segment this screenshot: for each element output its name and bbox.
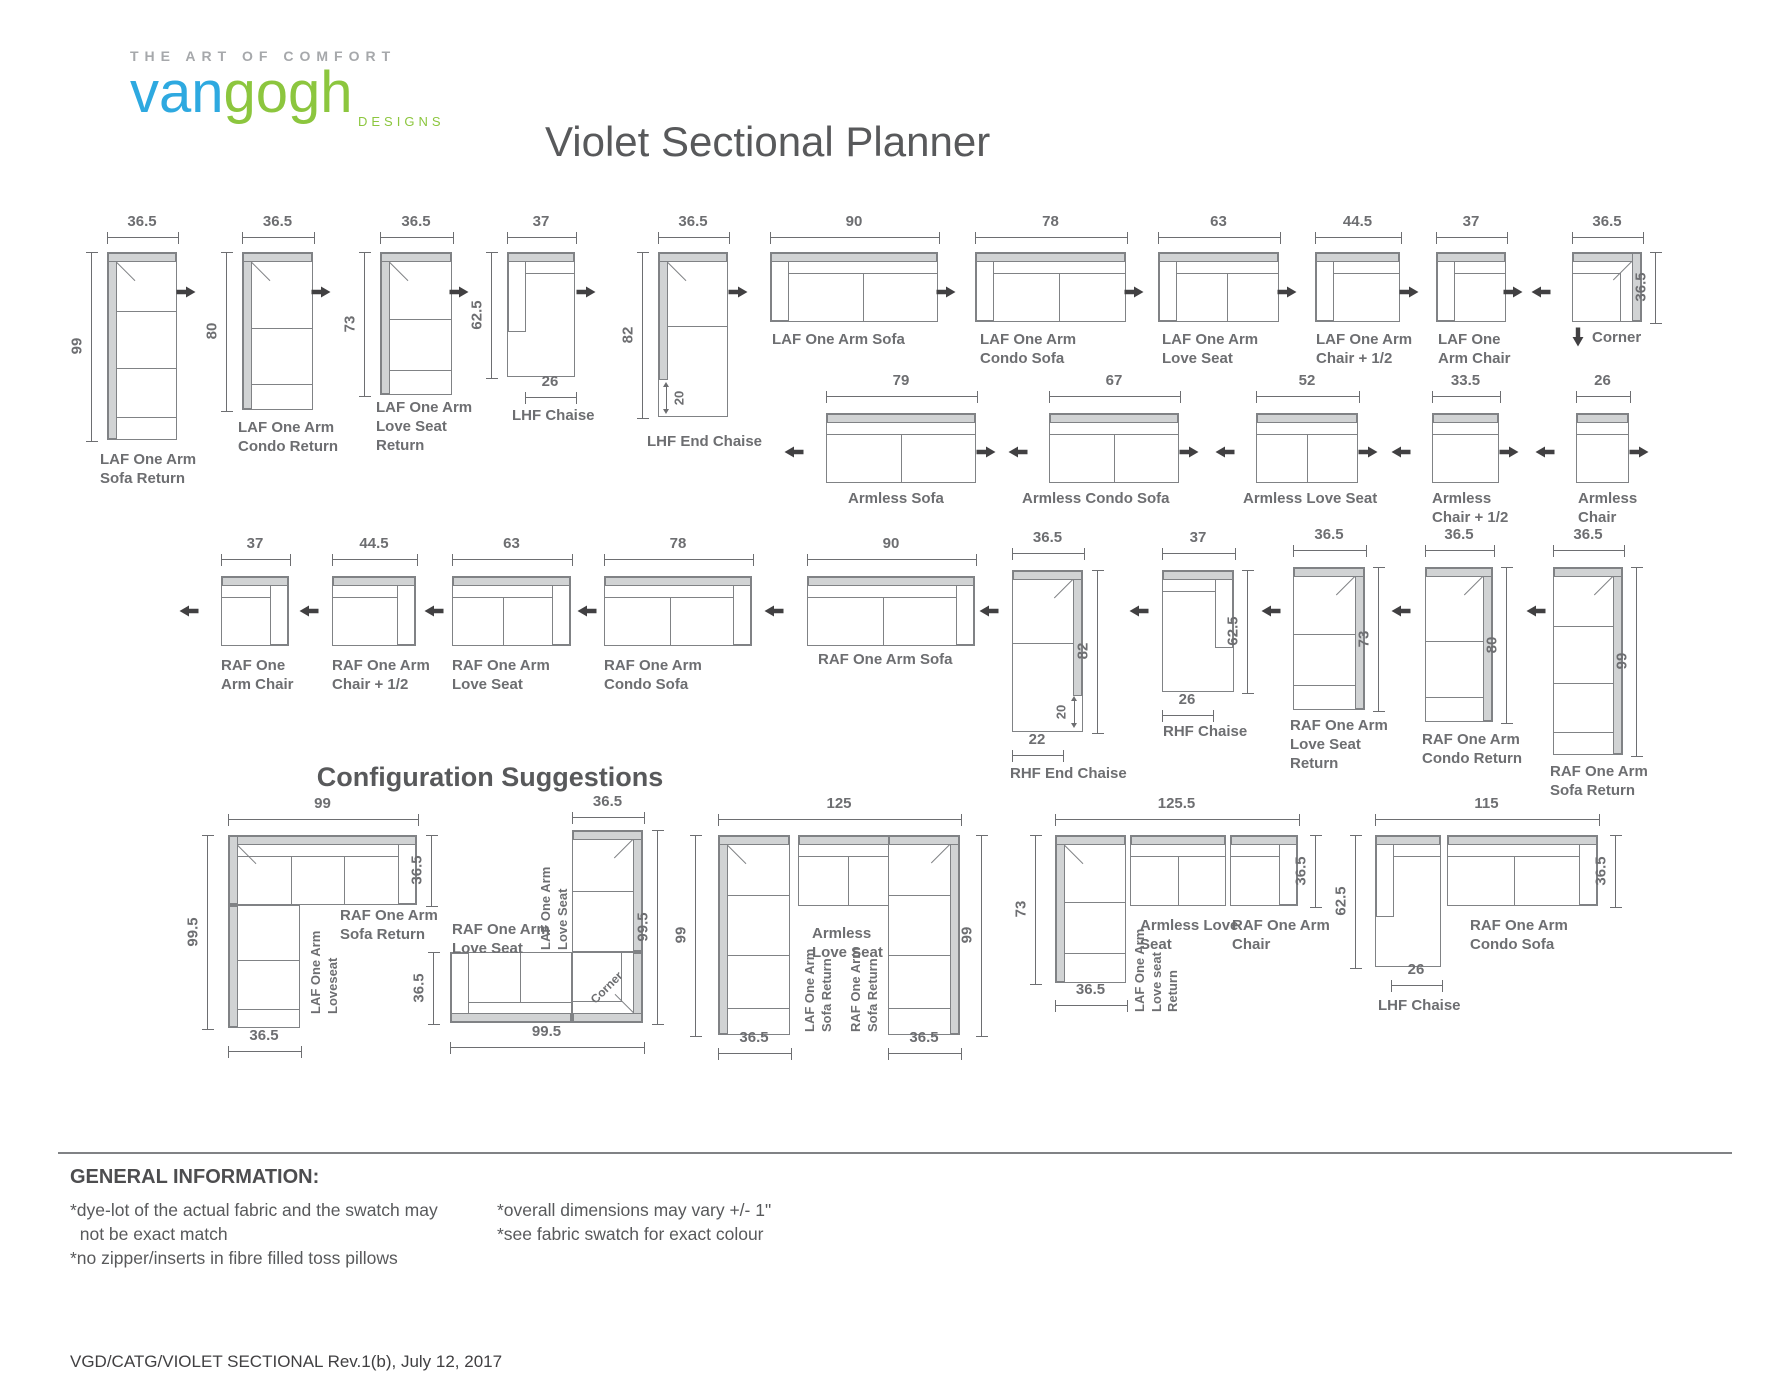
- dimension-label: 73: [1356, 630, 1373, 647]
- cushion-divider: [520, 953, 521, 1002]
- backrest: [659, 253, 668, 380]
- backrest: [1577, 414, 1628, 423]
- piece-cfg3-raf-one-arm-sofa-return: [888, 835, 960, 1035]
- dimension-label: 36.5: [1633, 272, 1650, 301]
- piece-cfg5-lhf-chaise: [1375, 835, 1441, 967]
- dimension-line: [718, 814, 962, 826]
- dimension-line: [1436, 232, 1508, 244]
- direction-arrow-icon: [1130, 605, 1149, 618]
- direction-arrow-icon: [765, 605, 784, 618]
- dimension-line: [1092, 570, 1104, 734]
- piece-raf-one-arm-sofa: [807, 576, 975, 646]
- dimension-label: 90: [846, 213, 863, 230]
- piece-label: RHF End Chaise: [1010, 764, 1127, 783]
- cushion-divider: [1294, 685, 1355, 686]
- general-info-column-2: *overall dimensions may vary +/- 1"*see …: [497, 1198, 771, 1246]
- miter-line: [1336, 576, 1355, 595]
- dimension-label: 80: [1484, 636, 1501, 653]
- dimension-line: [1375, 814, 1600, 826]
- dimension-line: [1055, 814, 1300, 826]
- miter-line: [931, 844, 950, 863]
- piece-lhf-chaise: [507, 252, 575, 377]
- miter-line: [251, 262, 270, 281]
- cushion-divider: [1554, 626, 1613, 627]
- backrest: [719, 836, 789, 845]
- configuration-suggestions-heading: Configuration Suggestions: [298, 762, 682, 793]
- piece-cfg2-raf-one-arm-love-seat: [450, 952, 572, 1023]
- cushion-divider: [728, 1008, 789, 1009]
- piece-cfg5-raf-one-arm-condo-sofa: [1447, 835, 1598, 906]
- dimension-label: 36.5: [411, 973, 428, 1002]
- piece-cfg2-laf-one-arm-love-seat: [572, 830, 643, 952]
- dimension-label: 78: [670, 535, 687, 552]
- piece-armless-condo-sofa: [1049, 413, 1179, 483]
- seat-line: [1393, 856, 1440, 857]
- direction-arrow-icon: [1630, 446, 1649, 459]
- piece-label: LAF One ArmSofa Return: [100, 450, 196, 488]
- dimension-arrow-line: [662, 382, 671, 414]
- armrest: [733, 585, 751, 645]
- backrest: [573, 1013, 642, 1022]
- piece-cfg4-raf-one-arm-chair: [1230, 835, 1298, 906]
- dimension-label: 36.5: [1573, 526, 1602, 543]
- dimension-line: [1158, 232, 1281, 244]
- piece-label: ArmlessChair + 1/2: [1432, 489, 1508, 527]
- dimension-line: [525, 392, 577, 404]
- piece-cfg4-armless-love-seat: [1130, 835, 1226, 906]
- dimension-label: 36.5: [1593, 856, 1610, 885]
- direction-arrow-icon: [1527, 605, 1546, 618]
- backrest: [1056, 836, 1125, 845]
- cushion-divider: [889, 955, 950, 956]
- backrest: [229, 836, 238, 904]
- piece-laf-one-arm-sofa: [770, 252, 938, 322]
- dimension-line: [1256, 391, 1360, 403]
- dimension-line: [1373, 567, 1385, 712]
- dimension-line: [690, 835, 702, 1037]
- cushion-divider: [1227, 273, 1228, 321]
- miter-line: [1594, 576, 1613, 595]
- dimension-label: 36.5: [1444, 526, 1473, 543]
- seat-line: [1231, 856, 1280, 857]
- seat-line: [525, 273, 574, 274]
- dimension-label: 73: [342, 315, 359, 332]
- dimension-label: 36.5: [1314, 526, 1343, 543]
- direction-arrow-icon: [312, 286, 331, 299]
- piece-label: RAF One ArmSofa Return: [340, 906, 438, 944]
- dimension-label: 99.5: [532, 1023, 561, 1040]
- dimension-line: [1350, 835, 1362, 969]
- piece-label: RAF One ArmLove Seat: [452, 920, 550, 958]
- page-title: Violet Sectional Planner: [545, 118, 990, 166]
- dimension-label: 99: [314, 795, 331, 812]
- dimension-line: [107, 232, 179, 244]
- backrest: [1056, 836, 1065, 982]
- dimension-label: 37: [247, 535, 264, 552]
- cushion-divider: [252, 328, 312, 329]
- direction-arrow-icon: [577, 286, 596, 299]
- piece-armless-love-seat: [1256, 413, 1358, 483]
- dimension-label: 20: [672, 391, 687, 405]
- dimension-label: 36.5: [1293, 856, 1310, 885]
- dimension-label: 62.5: [1333, 886, 1350, 915]
- dimension-line: [1631, 567, 1643, 757]
- cushion-divider: [390, 370, 451, 371]
- logo-brand-van: van: [130, 60, 224, 125]
- backrest: [229, 836, 416, 845]
- miter-line: [116, 262, 135, 281]
- direction-arrow-icon: [180, 605, 199, 618]
- piece-cfg1-laf-one-arm-loveseat: [228, 905, 300, 1028]
- violet-sectional-planner-page: THE ART OF COMFORT vangogh DESIGNS Viole…: [0, 0, 1792, 1390]
- dimension-label: 37: [533, 213, 550, 230]
- direction-arrow-icon: [425, 605, 444, 618]
- piece-label: RAF One ArmCondo Sofa: [604, 656, 702, 694]
- dimension-line: [807, 554, 977, 566]
- cushion-divider: [573, 891, 633, 892]
- piece-cfg1-raf-one-arm-sofa-return: [228, 835, 417, 905]
- piece-label: RAF One ArmChair: [1232, 916, 1330, 954]
- cushion-divider: [728, 955, 789, 956]
- armrest: [1437, 261, 1455, 321]
- cushion-divider: [238, 1009, 299, 1010]
- dimension-line: [770, 232, 940, 244]
- armrest: [552, 585, 570, 645]
- piece-label: LAF One ArmSofa Return: [802, 949, 835, 1032]
- seat-line: [1573, 273, 1621, 274]
- direction-arrow-icon: [1278, 286, 1297, 299]
- dimension-line: [1572, 232, 1644, 244]
- dimension-label: 80: [204, 323, 221, 340]
- piece-label: Armless Love Seat: [1243, 489, 1377, 508]
- armrest: [1316, 261, 1334, 321]
- dimension-label: 44.5: [359, 535, 388, 552]
- dimension-label: 78: [1042, 213, 1059, 230]
- cushion-divider: [1307, 434, 1308, 482]
- dimension-line: [486, 252, 498, 379]
- dimension-line: [507, 232, 577, 244]
- dimension-label: 36.5: [909, 1029, 938, 1046]
- cushion-divider: [291, 856, 292, 904]
- cushion-divider: [848, 856, 849, 905]
- dimension-label: 62.5: [1225, 616, 1242, 645]
- cushion-divider: [117, 368, 176, 369]
- backrest: [1257, 414, 1357, 423]
- dimension-label: 99.5: [635, 912, 652, 941]
- piece-label: RAF One ArmLove Seat: [452, 656, 550, 694]
- piece-label: LAF One Arm Sofa: [772, 330, 905, 349]
- piece-cfg4-laf-one-arm-love-seat-return: [1055, 835, 1126, 983]
- dimension-label: 63: [503, 535, 520, 552]
- dimension-line: [1310, 835, 1322, 908]
- logo-designs: DESIGNS: [358, 114, 445, 129]
- armrest: [451, 953, 469, 1014]
- dimension-line: [1162, 710, 1214, 722]
- dimension-line: [86, 252, 98, 442]
- dimension-label: 82: [1075, 643, 1092, 660]
- dimension-line: [1650, 252, 1662, 324]
- direction-arrow-icon: [578, 605, 597, 618]
- armrest: [1159, 261, 1177, 321]
- dimension-line: [826, 391, 978, 403]
- backrest: [659, 253, 727, 262]
- direction-arrow-icon: [1532, 286, 1551, 299]
- piece-label: RAF One ArmSofa Return: [848, 947, 881, 1032]
- cushion-divider: [1065, 902, 1125, 903]
- dimension-label: 90: [883, 535, 900, 552]
- dimension-line: [228, 1046, 302, 1058]
- cushion-divider: [883, 597, 884, 645]
- miter-line: [667, 262, 686, 281]
- dimension-label: 36.5: [249, 1027, 278, 1044]
- dimension-label: 62.5: [469, 300, 486, 329]
- backrest: [229, 906, 238, 1027]
- backrest: [243, 253, 312, 262]
- dimension-label: 36.5: [263, 213, 292, 230]
- piece-corner: [1572, 252, 1642, 322]
- dimension-line: [1162, 548, 1236, 560]
- cushion-divider: [238, 960, 299, 961]
- piece-laf-one-arm-love-seat: [1158, 252, 1279, 322]
- backrest: [827, 414, 975, 423]
- armrest: [1376, 844, 1394, 917]
- backrest: [808, 577, 974, 586]
- armrest: [397, 585, 415, 645]
- cushion-divider: [1178, 856, 1179, 905]
- cushion-divider: [390, 319, 451, 320]
- piece-laf-one-arm-condo-sofa: [975, 252, 1126, 322]
- armrest: [508, 261, 526, 332]
- piece-label: LHF Chaise: [1378, 996, 1461, 1015]
- armrest: [956, 585, 974, 645]
- dimension-label: 99: [673, 927, 690, 944]
- piece-label: RAF One Arm Sofa: [818, 650, 952, 669]
- dimension-line: [1055, 1000, 1128, 1012]
- piece-label: LAF One ArmCondo Return: [238, 418, 338, 456]
- dimension-line: [1576, 391, 1631, 403]
- info-note: *see fabric swatch for exact colour: [497, 1222, 771, 1246]
- dimension-label: 36.5: [678, 213, 707, 230]
- cushion-divider: [1554, 732, 1613, 733]
- piece-label: Corner: [1592, 328, 1641, 347]
- dimension-line: [428, 952, 440, 1025]
- direction-arrow-icon: [1216, 446, 1235, 459]
- piece-armless-chair-and-half: [1432, 413, 1499, 483]
- dimension-line: [1432, 391, 1501, 403]
- dimension-label: 99.5: [185, 917, 202, 946]
- piece-label: LAF One ArmLoveseat: [308, 931, 341, 1014]
- dimension-label: 52: [1299, 372, 1316, 389]
- cushion-divider: [728, 895, 789, 896]
- piece-raf-one-arm-love-seat-return: [1293, 567, 1365, 710]
- cushion-divider: [252, 384, 312, 385]
- direction-arrow-icon: [450, 286, 469, 299]
- dimension-line: [888, 1048, 962, 1060]
- dimension-label: 36.5: [401, 213, 430, 230]
- general-info-column-1: *dye-lot of the actual fabric and the sw…: [70, 1198, 438, 1270]
- dimension-line: [426, 835, 438, 907]
- backrest: [799, 836, 897, 845]
- dimension-line: [718, 1048, 792, 1060]
- dimension-line: [637, 252, 649, 419]
- dimension-line: [1012, 548, 1085, 560]
- seat-line: [222, 597, 271, 598]
- cushion-divider: [1114, 434, 1115, 482]
- seat-line: [238, 856, 399, 857]
- piece-label: LAF OneArm Chair: [1438, 330, 1511, 368]
- piece-raf-one-arm-chair-and-half: [332, 576, 416, 646]
- dimension-label: 36.5: [127, 213, 156, 230]
- direction-arrow-icon: [1262, 605, 1281, 618]
- piece-label: ArmlessChair: [1578, 489, 1637, 527]
- direction-arrow-icon: [1504, 286, 1523, 299]
- dimension-label: 115: [1474, 795, 1498, 812]
- piece-raf-one-arm-sofa-return: [1553, 567, 1623, 755]
- piece-laf-one-arm-love-seat-return: [380, 252, 452, 395]
- piece-label: RAF One ArmCondo Sofa: [1470, 916, 1568, 954]
- dimension-label: 67: [1106, 372, 1123, 389]
- cushion-divider: [670, 597, 671, 645]
- miter-line: [614, 839, 633, 858]
- direction-arrow-icon: [937, 286, 956, 299]
- backrest: [451, 1013, 571, 1022]
- cushion-divider: [1426, 697, 1483, 698]
- armrest: [270, 585, 288, 645]
- dimension-line: [1049, 391, 1181, 403]
- direction-arrow-icon: [177, 286, 196, 299]
- piece-label: LHF Chaise: [512, 406, 595, 425]
- section-divider: [58, 1152, 1732, 1154]
- seat-line: [468, 1002, 571, 1003]
- backrest: [243, 253, 252, 409]
- backrest: [108, 253, 176, 262]
- general-information-heading: GENERAL INFORMATION:: [70, 1166, 319, 1189]
- dimension-line: [1315, 232, 1402, 244]
- dimension-line: [1293, 545, 1367, 557]
- miter-line: [615, 994, 634, 1013]
- direction-arrow-icon: [1536, 446, 1555, 459]
- dimension-line: [572, 812, 645, 824]
- cushion-divider: [668, 326, 727, 327]
- direction-arrow-icon: [729, 286, 748, 299]
- cushion-divider: [503, 597, 504, 645]
- miter-line: [1613, 261, 1632, 280]
- dimension-label: 82: [620, 326, 637, 343]
- logo-brand-gogh: gogh: [224, 60, 353, 125]
- direction-arrow-icon: [1009, 446, 1028, 459]
- dimension-label: 26: [1179, 691, 1196, 708]
- dimension-label: 99: [1614, 653, 1631, 670]
- dimension-label: 44.5: [1343, 213, 1372, 230]
- direction-arrow-icon: [1125, 286, 1144, 299]
- piece-label: RAF One ArmChair + 1/2: [332, 656, 430, 694]
- backrest: [771, 253, 937, 262]
- backrest: [108, 253, 117, 439]
- miter-line: [237, 845, 256, 864]
- dimension-line: [1425, 545, 1495, 557]
- piece-raf-one-arm-condo-sofa: [604, 576, 752, 646]
- dimension-label: 37: [1463, 213, 1480, 230]
- info-note: *overall dimensions may vary +/- 1": [497, 1198, 771, 1222]
- seat-line: [1620, 273, 1621, 321]
- piece-label: LAF One ArmCondo Sofa: [980, 330, 1076, 368]
- piece-label: RAF One ArmSofa Return: [1550, 762, 1648, 800]
- piece-label: RHF Chaise: [1163, 722, 1247, 741]
- seat-line: [1163, 591, 1216, 592]
- direction-arrow-icon: [980, 605, 999, 618]
- cushion-divider: [1059, 273, 1060, 321]
- dimension-line: [202, 835, 214, 1030]
- miter-line: [1064, 845, 1083, 864]
- backrest: [1050, 414, 1178, 423]
- miter-line: [1464, 576, 1483, 595]
- dimension-line: [1610, 835, 1622, 908]
- direction-arrow-icon: [1572, 328, 1585, 347]
- piece-cfg3-armless-love-seat: [798, 835, 898, 906]
- piece-label: RAF OneArm Chair: [221, 656, 294, 694]
- info-note: *dye-lot of the actual fabric and the sw…: [70, 1198, 438, 1222]
- dimension-label: 36.5: [1076, 981, 1105, 998]
- dimension-label: 36.5: [593, 793, 622, 810]
- dimension-label: 36.5: [409, 855, 426, 884]
- dimension-line: [658, 232, 730, 244]
- backrest: [976, 253, 1125, 262]
- dimension-arrow-line: [1070, 696, 1079, 728]
- piece-cfg3-laf-one-arm-sofa-return: [718, 835, 790, 1035]
- dimension-line: [1553, 545, 1625, 557]
- cushion-divider: [889, 895, 950, 896]
- piece-laf-one-arm-chair: [1436, 252, 1506, 322]
- cushion-divider: [1013, 643, 1073, 644]
- piece-armless-sofa: [826, 413, 976, 483]
- backrest: [1131, 836, 1225, 845]
- dimension-line: [228, 814, 419, 826]
- cushion-divider: [889, 1008, 950, 1009]
- dimension-label: 125.5: [1158, 795, 1196, 812]
- dimension-label: 99: [69, 338, 86, 355]
- backrest: [1073, 571, 1082, 696]
- piece-label: LAF One ArmChair + 1/2: [1316, 330, 1412, 368]
- dimension-label: 79: [893, 372, 910, 389]
- backrest: [1433, 414, 1498, 423]
- dimension-label: 36.5: [1592, 213, 1621, 230]
- dimension-line: [975, 232, 1128, 244]
- cushion-divider: [1065, 953, 1125, 954]
- piece-label: Armless Condo Sofa: [1022, 489, 1170, 508]
- miter-line: [389, 262, 408, 281]
- piece-label: RAF One ArmCondo Return: [1422, 730, 1522, 768]
- dimension-line: [1391, 980, 1443, 992]
- dimension-label: 73: [1013, 901, 1030, 918]
- dimension-line: [1012, 750, 1064, 762]
- dimension-line: [1242, 570, 1254, 694]
- piece-armless-chair: [1576, 413, 1629, 483]
- dimension-label: 37: [1190, 529, 1207, 546]
- dimension-line: [1501, 567, 1513, 724]
- dimension-line: [450, 1042, 645, 1054]
- direction-arrow-icon: [785, 446, 804, 459]
- seat-line: [333, 597, 398, 598]
- direction-arrow-icon: [977, 446, 996, 459]
- seat-line: [1333, 273, 1399, 274]
- dimension-line: [652, 830, 664, 1025]
- info-note: not be exact match: [70, 1222, 438, 1246]
- direction-arrow-icon: [1180, 446, 1199, 459]
- dimension-label: 36.5: [1033, 529, 1062, 546]
- piece-laf-one-arm-sofa-return: [107, 252, 177, 440]
- cushion-divider: [1554, 683, 1613, 684]
- dimension-line: [976, 835, 988, 1037]
